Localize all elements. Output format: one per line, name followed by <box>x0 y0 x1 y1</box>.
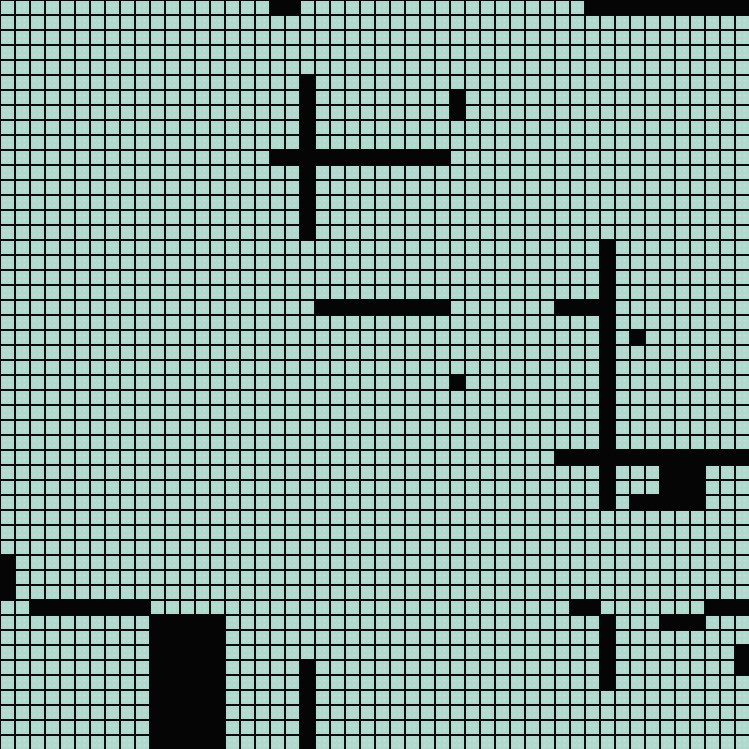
grid-cell <box>540 75 555 90</box>
grid-cell <box>390 375 405 390</box>
grid-cell <box>120 105 135 120</box>
grid-cell <box>120 630 135 645</box>
grid-cell <box>465 495 480 510</box>
grid-cell <box>525 375 540 390</box>
grid-cell <box>435 105 450 120</box>
grid-cell <box>60 540 75 555</box>
grid-cell <box>390 420 405 435</box>
grid-cell <box>105 435 120 450</box>
wall-cell <box>420 300 435 315</box>
grid-cell <box>330 90 345 105</box>
grid-cell <box>540 720 555 735</box>
wall-cell <box>180 705 195 720</box>
grid-cell <box>330 450 345 465</box>
grid-cell <box>585 330 600 345</box>
grid-cell <box>600 165 615 180</box>
grid-cell <box>435 0 450 15</box>
grid-cell <box>0 465 15 480</box>
grid-cell <box>0 210 15 225</box>
grid-cell <box>285 450 300 465</box>
grid-cell <box>525 360 540 375</box>
grid-cell <box>420 135 435 150</box>
grid-cell <box>270 720 285 735</box>
grid-cell <box>465 315 480 330</box>
grid-cell <box>435 330 450 345</box>
grid-cell <box>60 690 75 705</box>
grid-cell <box>315 255 330 270</box>
grid-cell <box>345 375 360 390</box>
grid-cell <box>510 210 525 225</box>
grid-cell <box>30 405 45 420</box>
grid-cell <box>60 675 75 690</box>
grid-cell <box>570 390 585 405</box>
grid-cell <box>570 330 585 345</box>
grid-cell <box>210 60 225 75</box>
wall-cell <box>600 0 615 15</box>
grid-cell <box>180 315 195 330</box>
grid-cell <box>150 330 165 345</box>
grid-cell <box>210 540 225 555</box>
wall-cell <box>645 495 660 510</box>
grid-cell <box>660 540 675 555</box>
grid-cell <box>150 555 165 570</box>
grid-cell <box>285 420 300 435</box>
grid-cell <box>435 165 450 180</box>
grid-cell <box>30 240 45 255</box>
grid-cell <box>480 525 495 540</box>
grid-cell <box>120 120 135 135</box>
grid-cell <box>240 690 255 705</box>
grid-cell <box>135 285 150 300</box>
grid-cell <box>270 480 285 495</box>
wall-cell <box>315 300 330 315</box>
grid-cell <box>120 645 135 660</box>
grid-cell <box>420 480 435 495</box>
grid-cell <box>585 705 600 720</box>
grid-cell <box>255 450 270 465</box>
grid-cell <box>255 510 270 525</box>
grid-cell <box>540 360 555 375</box>
grid-cell <box>225 705 240 720</box>
grid-cell <box>180 120 195 135</box>
grid-cell <box>390 135 405 150</box>
grid-cell <box>615 525 630 540</box>
grid-cell <box>180 600 195 615</box>
grid-cell <box>555 510 570 525</box>
grid-cell <box>660 105 675 120</box>
grid-cell <box>60 285 75 300</box>
grid-cell <box>300 240 315 255</box>
grid-cell <box>375 240 390 255</box>
grid-cell <box>630 270 645 285</box>
grid-cell <box>555 540 570 555</box>
wall-cell <box>300 675 315 690</box>
grid-cell <box>60 315 75 330</box>
grid-cell <box>285 360 300 375</box>
grid-cell <box>390 315 405 330</box>
grid-cell <box>585 225 600 240</box>
grid-cell <box>345 420 360 435</box>
wall-cell <box>210 735 225 749</box>
grid-cell <box>150 0 165 15</box>
grid-cell <box>465 645 480 660</box>
grid-cell <box>480 165 495 180</box>
grid-cell <box>435 435 450 450</box>
grid-cell <box>240 270 255 285</box>
grid-cell <box>90 585 105 600</box>
grid-cell <box>510 150 525 165</box>
grid-cell <box>315 585 330 600</box>
grid-cell <box>540 210 555 225</box>
grid-cell <box>240 495 255 510</box>
grid-cell <box>150 405 165 420</box>
grid-cell <box>570 705 585 720</box>
grid-cell <box>525 630 540 645</box>
grid-cell <box>45 75 60 90</box>
grid-cell <box>510 555 525 570</box>
grid-cell <box>135 465 150 480</box>
grid-cell <box>675 675 690 690</box>
grid-cell <box>405 720 420 735</box>
grid-cell <box>210 495 225 510</box>
grid-cell <box>90 570 105 585</box>
grid-cell <box>615 105 630 120</box>
grid-cell <box>615 390 630 405</box>
grid-cell <box>405 450 420 465</box>
grid-cell <box>45 0 60 15</box>
wall-cell <box>150 660 165 675</box>
wall-cell <box>210 660 225 675</box>
wall-cell <box>450 375 465 390</box>
grid-cell <box>720 60 735 75</box>
grid-cell <box>270 330 285 345</box>
grid-cell <box>600 150 615 165</box>
grid-cell <box>105 75 120 90</box>
wall-cell <box>690 465 705 480</box>
grid-cell <box>675 630 690 645</box>
grid-cell <box>705 585 720 600</box>
grid-cell <box>30 390 45 405</box>
wall-cell <box>585 600 600 615</box>
grid-cell <box>390 615 405 630</box>
grid-cell <box>120 540 135 555</box>
grid-cell <box>555 705 570 720</box>
grid-cell <box>345 390 360 405</box>
grid-cell <box>240 600 255 615</box>
grid-cell <box>435 525 450 540</box>
grid-cell <box>195 435 210 450</box>
grid-cell <box>510 465 525 480</box>
grid-cell <box>690 105 705 120</box>
grid-cell <box>0 60 15 75</box>
grid-cell <box>45 405 60 420</box>
grid-cell <box>210 45 225 60</box>
grid-cell <box>525 210 540 225</box>
grid-cell <box>360 480 375 495</box>
grid-cell <box>435 405 450 420</box>
grid-cell <box>450 225 465 240</box>
grid-cell <box>0 165 15 180</box>
grid-cell <box>555 330 570 345</box>
grid-cell <box>105 165 120 180</box>
grid-cell <box>90 480 105 495</box>
grid-cell <box>45 570 60 585</box>
grid-cell <box>15 630 30 645</box>
grid-cell <box>315 735 330 749</box>
grid-cell <box>135 405 150 420</box>
wall-cell <box>195 615 210 630</box>
wall-cell <box>165 720 180 735</box>
grid-cell <box>585 195 600 210</box>
grid-cell <box>375 435 390 450</box>
grid-cell <box>735 45 749 60</box>
grid-cell <box>510 480 525 495</box>
grid-cell <box>45 345 60 360</box>
grid-cell <box>240 60 255 75</box>
grid-cell <box>255 735 270 749</box>
grid-cell <box>330 555 345 570</box>
grid-cell <box>315 420 330 435</box>
grid-cell <box>105 30 120 45</box>
grid-cell <box>645 390 660 405</box>
grid-cell <box>225 720 240 735</box>
grid-cell <box>615 75 630 90</box>
grid-cell <box>495 735 510 749</box>
grid-cell <box>360 675 375 690</box>
grid-cell <box>225 270 240 285</box>
grid-cell <box>90 270 105 285</box>
grid-cell <box>0 660 15 675</box>
grid-cell <box>390 210 405 225</box>
wall-cell <box>180 660 195 675</box>
grid-cell <box>180 285 195 300</box>
grid-cell <box>645 675 660 690</box>
grid-cell <box>630 480 645 495</box>
grid-cell <box>735 330 749 345</box>
grid-cell <box>405 330 420 345</box>
grid-cell <box>210 315 225 330</box>
grid-cell <box>255 165 270 180</box>
grid-cell <box>390 675 405 690</box>
grid-cell <box>300 450 315 465</box>
grid-cell <box>630 615 645 630</box>
grid-cell <box>570 15 585 30</box>
maze-viewport <box>0 0 749 749</box>
wall-cell <box>180 675 195 690</box>
grid-cell <box>90 30 105 45</box>
grid-cell <box>60 270 75 285</box>
grid-cell <box>330 0 345 15</box>
grid-cell <box>525 450 540 465</box>
grid-cell <box>510 405 525 420</box>
grid-cell <box>210 210 225 225</box>
grid-cell <box>675 390 690 405</box>
grid-cell <box>105 270 120 285</box>
grid-cell <box>450 480 465 495</box>
grid-cell <box>690 660 705 675</box>
grid-cell <box>90 555 105 570</box>
grid-cell <box>270 255 285 270</box>
grid-cell <box>345 525 360 540</box>
grid-cell <box>330 570 345 585</box>
grid-cell <box>135 645 150 660</box>
wall-cell <box>645 0 660 15</box>
grid-cell <box>150 345 165 360</box>
grid-cell <box>375 135 390 150</box>
grid-cell <box>585 255 600 270</box>
grid-cell <box>300 330 315 345</box>
grid-cell <box>135 705 150 720</box>
grid-cell <box>270 420 285 435</box>
grid-cell <box>735 615 749 630</box>
grid-cell <box>660 390 675 405</box>
grid-cell <box>195 270 210 285</box>
grid-cell <box>285 435 300 450</box>
grid-cell <box>210 555 225 570</box>
grid-cell <box>555 255 570 270</box>
grid-cell <box>555 345 570 360</box>
grid-cell <box>15 585 30 600</box>
grid-cell <box>720 720 735 735</box>
grid-cell <box>720 105 735 120</box>
grid-cell <box>285 285 300 300</box>
wall-cell <box>720 600 735 615</box>
grid-cell <box>60 495 75 510</box>
grid-cell <box>585 90 600 105</box>
grid-cell <box>270 105 285 120</box>
grid-cell <box>60 465 75 480</box>
grid-cell <box>165 450 180 465</box>
grid-cell <box>135 0 150 15</box>
grid-cell <box>285 330 300 345</box>
grid-cell <box>585 525 600 540</box>
grid-cell <box>195 495 210 510</box>
grid-cell <box>60 405 75 420</box>
grid-cell <box>345 570 360 585</box>
grid-cell <box>705 195 720 210</box>
grid-cell <box>705 525 720 540</box>
grid-cell <box>330 345 345 360</box>
grid-cell <box>615 195 630 210</box>
wall-cell <box>0 555 15 570</box>
grid-cell <box>270 675 285 690</box>
grid-cell <box>180 585 195 600</box>
grid-cell <box>660 120 675 135</box>
grid-cell <box>525 345 540 360</box>
grid-cell <box>675 345 690 360</box>
grid-cell <box>690 285 705 300</box>
grid-cell <box>540 450 555 465</box>
grid-cell <box>180 180 195 195</box>
grid-cell <box>135 375 150 390</box>
grid-cell <box>705 645 720 660</box>
grid-cell <box>30 225 45 240</box>
grid-cell <box>435 15 450 30</box>
grid-cell <box>360 210 375 225</box>
grid-cell <box>450 300 465 315</box>
grid-cell <box>165 375 180 390</box>
grid-cell <box>375 600 390 615</box>
grid-cell <box>75 165 90 180</box>
grid-cell <box>75 615 90 630</box>
grid-cell <box>450 165 465 180</box>
grid-cell <box>420 495 435 510</box>
grid-cell <box>450 255 465 270</box>
grid-cell <box>420 630 435 645</box>
grid-cell <box>645 555 660 570</box>
grid-cell <box>165 540 180 555</box>
grid-cell <box>285 510 300 525</box>
grid-cell <box>315 120 330 135</box>
grid-cell <box>90 495 105 510</box>
grid-cell <box>345 495 360 510</box>
grid-cell <box>150 585 165 600</box>
grid-cell <box>0 270 15 285</box>
grid-cell <box>180 15 195 30</box>
grid-cell <box>360 540 375 555</box>
grid-cell <box>150 60 165 75</box>
grid-cell <box>255 60 270 75</box>
grid-cell <box>720 375 735 390</box>
grid-cell <box>210 285 225 300</box>
grid-cell <box>420 30 435 45</box>
grid-cell <box>330 720 345 735</box>
grid-cell <box>300 255 315 270</box>
wall-cell <box>600 420 615 435</box>
grid-cell <box>15 540 30 555</box>
grid-cell <box>660 360 675 375</box>
wall-cell <box>600 270 615 285</box>
grid-cell <box>60 630 75 645</box>
grid-cell <box>285 60 300 75</box>
grid-cell <box>255 585 270 600</box>
grid-cell <box>75 420 90 435</box>
grid-cell <box>480 600 495 615</box>
grid-cell <box>255 255 270 270</box>
grid-cell <box>195 420 210 435</box>
grid-cell <box>30 15 45 30</box>
grid-cell <box>405 495 420 510</box>
grid-cell <box>180 510 195 525</box>
grid-cell <box>375 390 390 405</box>
grid-cell <box>675 405 690 420</box>
grid-cell <box>465 45 480 60</box>
grid-cell <box>300 615 315 630</box>
grid-cell <box>630 510 645 525</box>
grid-cell <box>315 270 330 285</box>
grid-cell <box>15 405 30 420</box>
grid-cell <box>360 390 375 405</box>
grid-cell <box>345 405 360 420</box>
grid-cell <box>600 15 615 30</box>
grid-cell <box>225 285 240 300</box>
grid-cell <box>375 195 390 210</box>
grid-cell <box>735 360 749 375</box>
grid-cell <box>615 375 630 390</box>
grid-cell <box>540 660 555 675</box>
grid-cell <box>390 60 405 75</box>
grid-cell <box>360 525 375 540</box>
grid-cell <box>690 705 705 720</box>
grid-cell <box>240 480 255 495</box>
grid-cell <box>465 270 480 285</box>
grid-cell <box>495 105 510 120</box>
grid-cell <box>720 525 735 540</box>
grid-cell <box>45 105 60 120</box>
grid-cell <box>120 510 135 525</box>
grid-cell <box>225 75 240 90</box>
grid-cell <box>270 645 285 660</box>
